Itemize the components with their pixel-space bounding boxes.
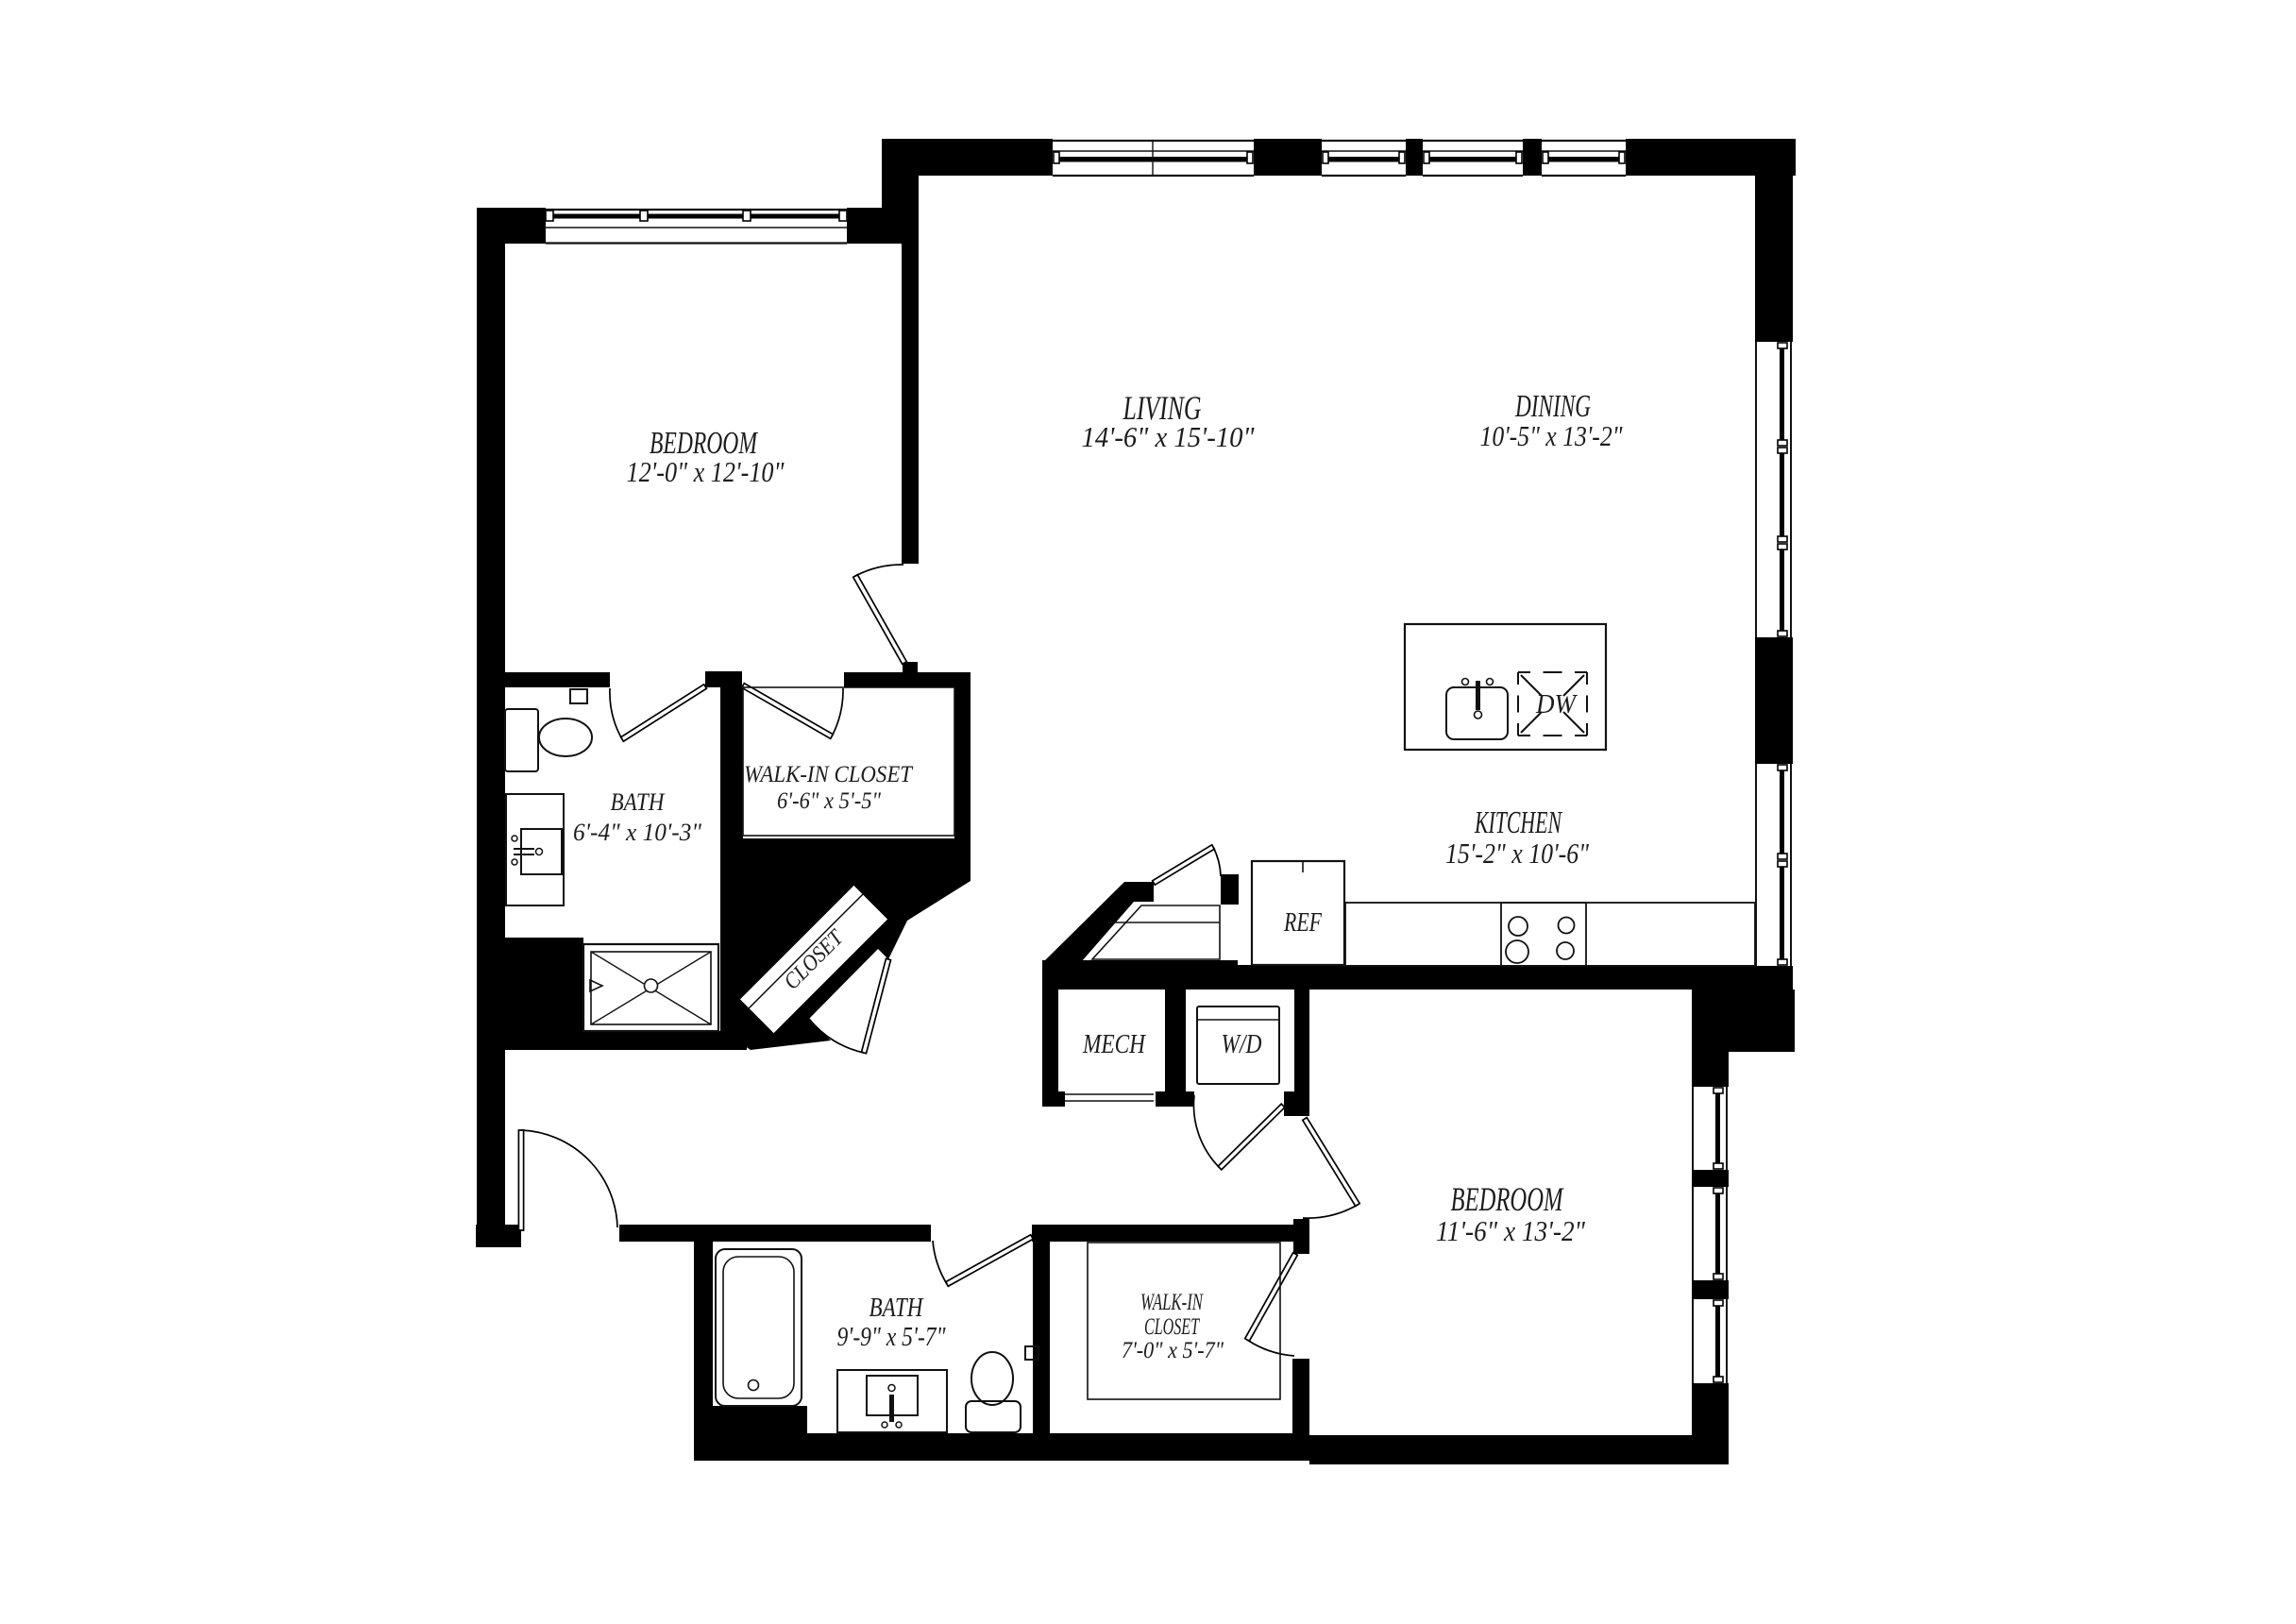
svg-text:MECH: MECH	[1082, 1029, 1146, 1059]
svg-text:WALK-IN CLOSET: WALK-IN CLOSET	[744, 762, 914, 787]
svg-text:REF: REF	[1283, 907, 1322, 938]
svg-text:15'-2" x 10'-6": 15'-2" x 10'-6"	[1445, 837, 1590, 870]
svg-text:WALK-IN: WALK-IN	[1140, 1290, 1204, 1315]
svg-text:W/D: W/D	[1222, 1030, 1262, 1059]
svg-text:6'-6" x 5'-5": 6'-6" x 5'-5"	[777, 788, 881, 814]
svg-text:14'-6" x 15'-10": 14'-6" x 15'-10"	[1082, 420, 1256, 453]
svg-text:DW: DW	[1535, 689, 1578, 719]
svg-text:12'-0" x 12'-10": 12'-0" x 12'-10"	[627, 455, 785, 488]
svg-text:7'-0" x 5'-7": 7'-0" x 5'-7"	[1122, 1338, 1224, 1363]
svg-text:9'-9" x 5'-7": 9'-9" x 5'-7"	[837, 1323, 946, 1352]
svg-text:BEDROOM: BEDROOM	[1451, 1180, 1564, 1218]
svg-text:11'-6" x 13'-2": 11'-6" x 13'-2"	[1436, 1214, 1586, 1247]
svg-text:BATH: BATH	[611, 788, 666, 816]
svg-text:6'-4" x 10'-3": 6'-4" x 10'-3"	[573, 819, 701, 846]
svg-text:BATH: BATH	[869, 1293, 925, 1323]
svg-text:CLOSET: CLOSET	[1144, 1314, 1200, 1340]
svg-text:10'-5" x 13'-2": 10'-5" x 13'-2"	[1480, 419, 1624, 452]
svg-text:KITCHEN: KITCHEN	[1474, 805, 1562, 840]
